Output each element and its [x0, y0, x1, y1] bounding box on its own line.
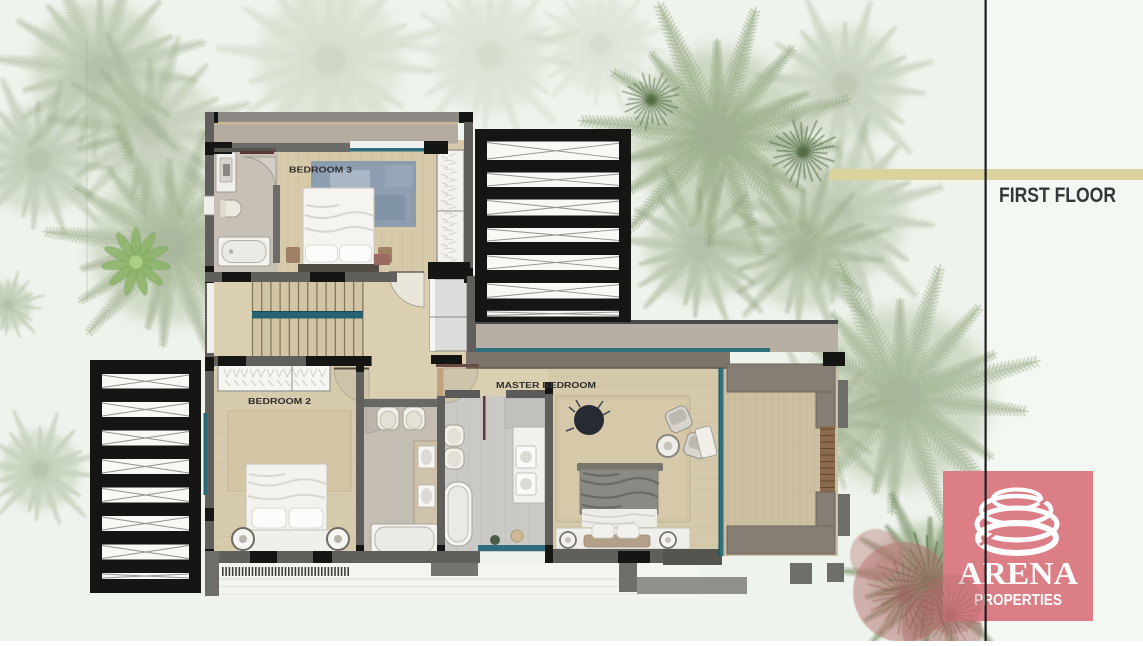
svg-text:ARENA: ARENA	[958, 555, 1078, 591]
svg-text:PROPERTIES: PROPERTIES	[974, 592, 1062, 609]
svg-text:MASTER BEDROOM: MASTER BEDROOM	[496, 381, 596, 390]
svg-text:BEDROOM 3: BEDROOM 3	[289, 166, 353, 175]
svg-text:BEDROOM 2: BEDROOM 2	[248, 397, 312, 406]
svg-text:FIRST FLOOR: FIRST FLOOR	[999, 184, 1116, 207]
